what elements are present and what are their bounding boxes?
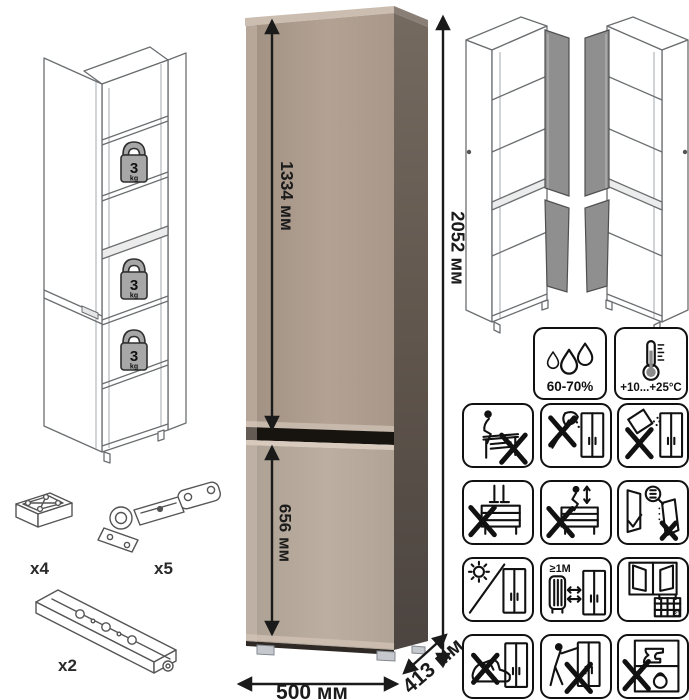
cabinet-side-panel	[168, 53, 186, 430]
no-sitting-on-furniture	[462, 403, 534, 468]
no-overload-icon	[620, 637, 686, 696]
dim-width: 500 мм	[276, 681, 348, 700]
no-standing-on-furniture	[462, 480, 534, 545]
open-cabinet-line-drawing: 3 kg 3 kg 3 kg	[44, 47, 186, 463]
rail-part	[36, 590, 176, 673]
acclimatize-ventilate-room: 21	[617, 557, 689, 622]
thermometer-icon	[618, 338, 684, 382]
no-jumping-icon	[543, 483, 609, 542]
no-dragging-icon	[543, 637, 609, 696]
shelf-load-badge: 3 kg	[121, 259, 147, 300]
hinge-part	[98, 481, 222, 552]
dim-upper-door-height: 1334 мм	[277, 161, 297, 231]
dim-lower-door-height: 656 мм	[276, 504, 295, 562]
no-spill-icon	[620, 406, 686, 465]
avoid-direct-sunlight	[462, 557, 534, 622]
no-sharp-tools	[540, 403, 612, 468]
open-window-calendar-icon: 21	[620, 560, 686, 619]
upper-door-open	[545, 30, 569, 196]
no-sitting-icon	[465, 406, 531, 465]
upper-door-open	[585, 30, 609, 196]
shelf-load-badge: 3 kg	[121, 330, 147, 371]
lower-door-open	[585, 200, 609, 292]
cabinet-side	[394, 13, 428, 650]
adjustable-foot-part	[16, 493, 72, 527]
shelf-load-badge: 3 kg	[121, 142, 147, 183]
no-shoe-icon	[465, 637, 531, 696]
no-axe-icon	[543, 406, 609, 465]
svg-text:kg: kg	[130, 293, 138, 300]
heat-distance-icon: ≥1M	[543, 560, 609, 619]
no-abrasive-spill	[617, 403, 689, 468]
door-orientation-left-variant	[466, 17, 569, 333]
keep-1m-from-heat: ≥1M	[540, 557, 612, 622]
humidity-badge: 60-70%	[533, 327, 607, 400]
door-orientation-right-variant	[585, 17, 688, 333]
rails-qty-label: x2	[58, 656, 77, 675]
open-door	[44, 58, 102, 452]
svg-text:3: 3	[130, 277, 138, 294]
svg-text:kg: kg	[130, 364, 138, 371]
no-jumping-on-furniture	[540, 480, 612, 545]
no-sunlight-icon	[465, 560, 531, 619]
no-pushing-with-foot	[462, 634, 534, 699]
humidity-drops-icon	[537, 336, 603, 380]
calendar-day-label: 21	[673, 610, 681, 617]
load-unit: kg	[130, 176, 138, 183]
lower-door	[246, 445, 394, 650]
hinges-qty-label: x5	[154, 559, 173, 578]
door-adjustment-icon	[620, 483, 686, 542]
min-distance-label: ≥1M	[550, 563, 571, 575]
svg-text:3: 3	[130, 348, 138, 365]
door-adjustment-check	[617, 480, 689, 545]
product-spec-diagram: 3 kg 3 kg 3 kg	[0, 0, 689, 700]
temperature-badge: +10...+25°C	[614, 327, 688, 400]
foot	[104, 452, 110, 463]
feet-qty-label: x4	[30, 559, 49, 578]
door-knob	[683, 150, 687, 154]
lower-door-open	[545, 200, 569, 292]
no-dragging-furniture	[540, 634, 612, 699]
humidity-label: 60-70%	[547, 380, 594, 395]
load-value: 3	[130, 160, 138, 177]
temperature-label: +10...+25°C	[620, 382, 682, 395]
upper-door	[246, 13, 394, 432]
foot	[158, 430, 164, 441]
no-standing-icon	[465, 483, 531, 542]
door-knob	[467, 150, 471, 154]
no-heavy-items-inside	[617, 634, 689, 699]
